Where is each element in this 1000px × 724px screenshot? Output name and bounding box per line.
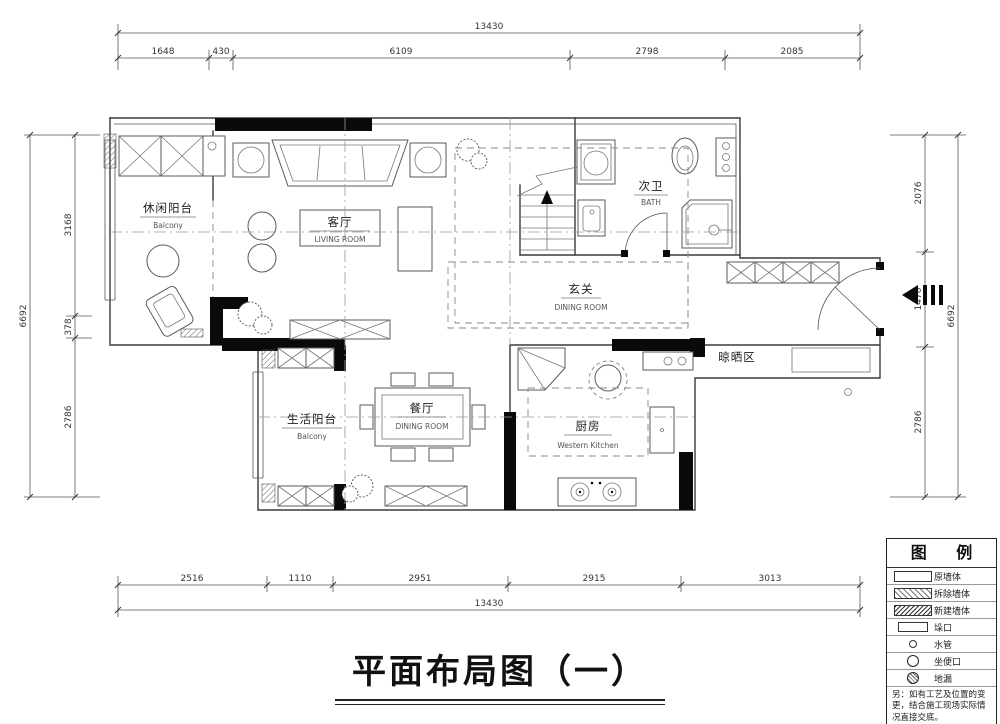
label-leisure-balcony-en: Balcony: [153, 221, 183, 230]
staircase: [517, 167, 577, 250]
opening-swatch: [898, 622, 928, 632]
dim-top-seg1: 1648: [152, 47, 175, 57]
dim-right-seg3: 2786: [914, 410, 924, 433]
dining-chair-icon: [429, 448, 453, 461]
floor-plan-drawing: 13430 1648 430 6109 2798 2085 2516 1110 …: [0, 0, 1000, 724]
cabinets: [119, 136, 839, 506]
legend-label: 地漏: [934, 672, 952, 685]
dim-left-seg3: 2786: [64, 405, 74, 428]
water-pipe-icon: [909, 640, 917, 648]
kitchen-fixtures: [518, 348, 693, 506]
dim-top-seg2: 430: [212, 47, 229, 57]
toilet-outlet-icon: [907, 655, 919, 667]
floor-drain-icon: [845, 389, 852, 396]
legend-row-opening: 垛口: [887, 619, 996, 636]
legend-row-original-wall: 原墙体: [887, 568, 996, 585]
dim-top-seg5: 2085: [781, 47, 804, 57]
drying-mat-icon: [792, 348, 870, 372]
dim-top-overall: 13430: [475, 22, 504, 32]
dim-left-seg2: 378: [64, 318, 74, 335]
label-living-room-en: LIVING ROOM: [314, 235, 365, 244]
dim-left-overall: 6692: [19, 305, 29, 328]
label-entry-en: DINING ROOM: [554, 303, 607, 312]
counter-board-icon: [650, 407, 674, 453]
dim-top-seg4: 2798: [636, 47, 659, 57]
dim-bottom-seg1: 2516: [181, 574, 204, 584]
balcony-furniture: [144, 245, 194, 338]
shelf-icon: [716, 138, 736, 176]
label-kitchen: 厨房: [576, 419, 601, 433]
dim-bottom-seg2: 1110: [289, 574, 312, 584]
legend-title: 图 例: [887, 539, 996, 568]
tv-bench-icon: [398, 207, 432, 271]
title-underline-2: [335, 704, 665, 705]
label-leisure-balcony: 休闲阳台: [143, 201, 193, 215]
label-life-balcony: 生活阳台: [287, 412, 337, 426]
dining-chair-icon: [391, 373, 415, 386]
dimension-left: 6692 3168 378 2786: [19, 132, 100, 500]
exterior-walls: [110, 118, 880, 510]
legend-label: 水管: [934, 638, 952, 651]
page-title: 平面布局图（一）: [300, 644, 700, 693]
legend-label: 坐便口: [934, 655, 961, 668]
legend-box: 图 例 原墙体 拆除墙体 新建墙体 垛口 水管 坐便口 地漏 另：如有: [886, 538, 997, 724]
label-entry: 玄关: [569, 282, 594, 296]
floor-plan-page: 13430 1648 430 6109 2798 2085 2516 1110 …: [0, 0, 1000, 724]
armchair-icon: [248, 244, 276, 272]
drying-area: [792, 348, 870, 396]
toilet-icon: [672, 138, 698, 174]
counter-sink-icon: [643, 352, 693, 370]
legend-label: 原墙体: [934, 570, 961, 583]
corner-cabinet-icon: [518, 348, 565, 390]
stove-icon: [558, 478, 636, 506]
legend-row-toilet-outlet: 坐便口: [887, 653, 996, 670]
dim-right-overall: 6692: [947, 305, 957, 328]
label-living-room: 客厅: [328, 215, 353, 229]
label-bath: 次卫: [639, 179, 664, 193]
dim-bottom-seg4: 2915: [583, 574, 606, 584]
label-dining-room: 餐厅: [410, 401, 435, 415]
round-table-icon: [147, 245, 179, 277]
washing-machine-icon: [577, 140, 615, 184]
demolish-wall-swatch: [894, 588, 932, 599]
original-wall-swatch: [894, 571, 932, 582]
legend-label: 拆除墙体: [934, 587, 970, 600]
legend-label: 新建墙体: [934, 604, 970, 617]
legend-label: 垛口: [934, 621, 952, 634]
legend-row-new-wall: 新建墙体: [887, 602, 996, 619]
dim-bottom-seg3: 2951: [409, 574, 432, 584]
legend-row-water-pipe: 水管: [887, 636, 996, 653]
label-life-balcony-en: Balcony: [297, 432, 327, 441]
legend-row-floor-drain: 地漏: [887, 670, 996, 687]
dimension-top: 13430 1648 430 6109 2798 2085: [115, 22, 863, 70]
dimension-bottom: 2516 1110 2951 2915 3013 13430: [115, 574, 863, 617]
floor-drain-icon: [907, 672, 919, 684]
dim-left-seg1: 3168: [64, 213, 74, 236]
armchair-icon: [248, 212, 276, 240]
dimension-right: 2076 1470 2786 6692: [890, 132, 966, 500]
dining-chair-icon: [429, 373, 453, 386]
label-dining-room-en: DINING ROOM: [395, 422, 448, 431]
dim-bottom-seg5: 3013: [759, 574, 782, 584]
legend-note: 另：如有工艺及位置的变更，结合施工现场实际情况直接交底。: [887, 687, 996, 724]
label-kitchen-en: Western Kitchen: [557, 441, 619, 450]
dining-chair-icon: [391, 448, 415, 461]
label-bath-en: BATH: [641, 198, 661, 207]
new-wall-swatch: [894, 605, 932, 616]
legend-row-demolish-wall: 拆除墙体: [887, 585, 996, 602]
kitchen-chair-icon: [595, 365, 621, 391]
shower-icon: [682, 200, 732, 248]
dim-top-seg3: 6109: [390, 47, 413, 57]
dim-bottom-overall: 13430: [475, 599, 504, 609]
title-underline: [335, 699, 665, 701]
dim-right-seg1: 2076: [914, 181, 924, 204]
label-drying-area: 晾晒区: [718, 350, 756, 364]
